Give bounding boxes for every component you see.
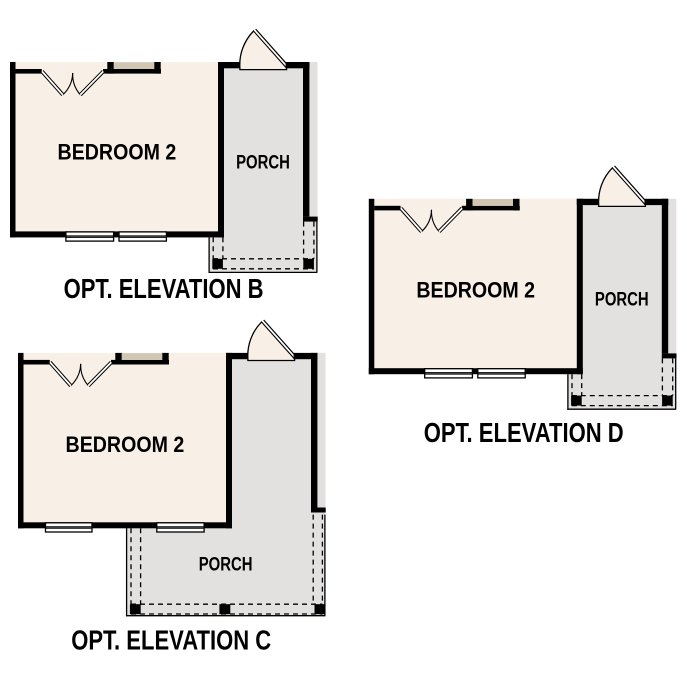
- svg-text:BEDROOM 2: BEDROOM 2: [58, 140, 177, 165]
- svg-text:PORCH: PORCH: [199, 554, 253, 576]
- svg-text:OPT. ELEVATION D: OPT. ELEVATION D: [424, 417, 624, 448]
- svg-text:PORCH: PORCH: [595, 288, 649, 310]
- svg-text:OPT. ELEVATION C: OPT. ELEVATION C: [71, 624, 271, 655]
- svg-text:PORCH: PORCH: [236, 152, 290, 174]
- svg-text:BEDROOM 2: BEDROOM 2: [66, 432, 185, 457]
- svg-text:OPT. ELEVATION B: OPT. ELEVATION B: [64, 273, 264, 304]
- svg-text:BEDROOM 2: BEDROOM 2: [416, 278, 535, 303]
